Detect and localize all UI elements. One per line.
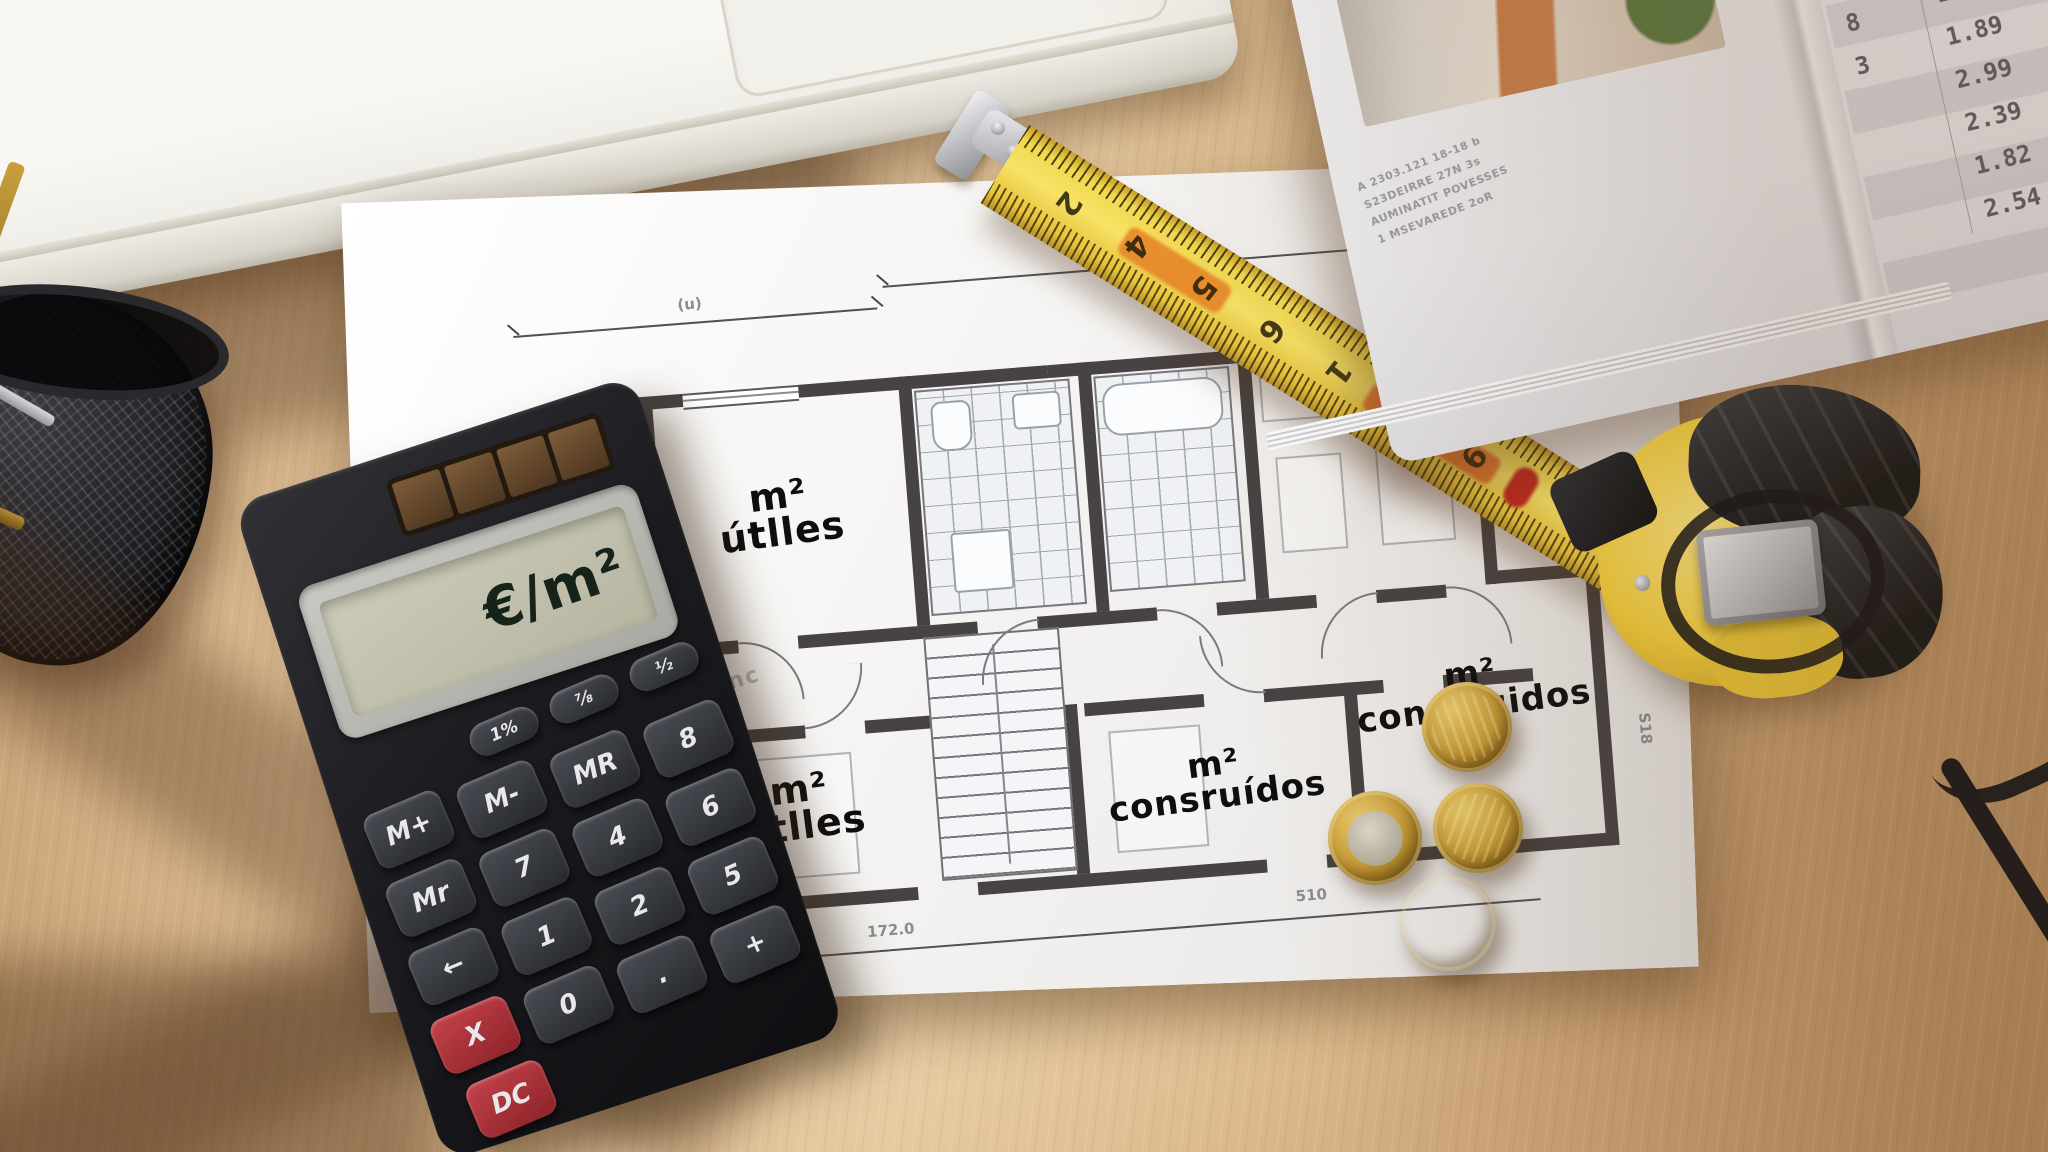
desk-scene: (u) (Qu) 800 610 172.0 510 S18 (0, 0, 2048, 1152)
display-value: €/m² (474, 535, 633, 644)
